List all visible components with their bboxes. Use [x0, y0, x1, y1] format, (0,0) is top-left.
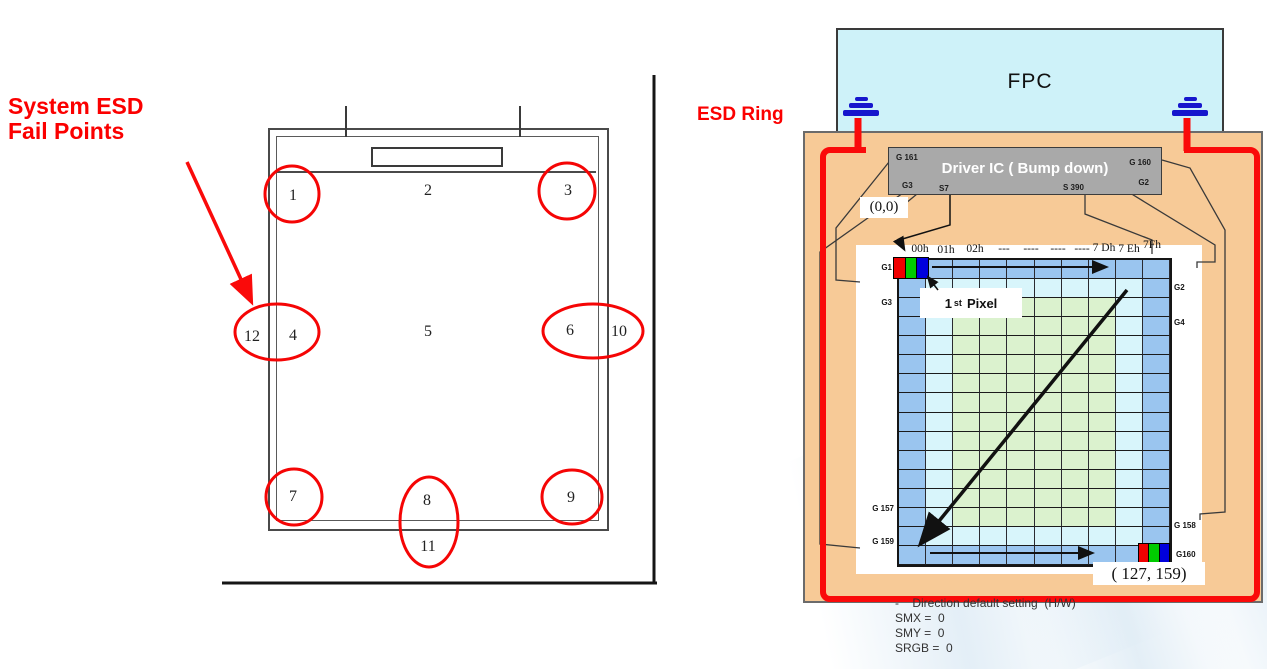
scan-direction-arrow — [922, 290, 1127, 542]
fail-points-arrow — [187, 162, 251, 301]
fail-circle-9 — [542, 470, 602, 524]
slide: System ESD Fail Points 1 2 3 4 5 6 7 8 9… — [0, 0, 1267, 669]
origin-arrow — [899, 195, 950, 249]
fail-circle-8-11 — [400, 477, 458, 567]
fail-circle-1 — [265, 166, 319, 222]
annotation-layer — [0, 0, 1267, 669]
fail-circle-12-4 — [235, 304, 319, 360]
section-divider — [222, 75, 657, 584]
fail-circle-3 — [539, 163, 595, 219]
fail-circle-6-10 — [543, 304, 643, 358]
fail-circle-7 — [266, 469, 322, 525]
first-pixel-pointer — [928, 277, 938, 290]
